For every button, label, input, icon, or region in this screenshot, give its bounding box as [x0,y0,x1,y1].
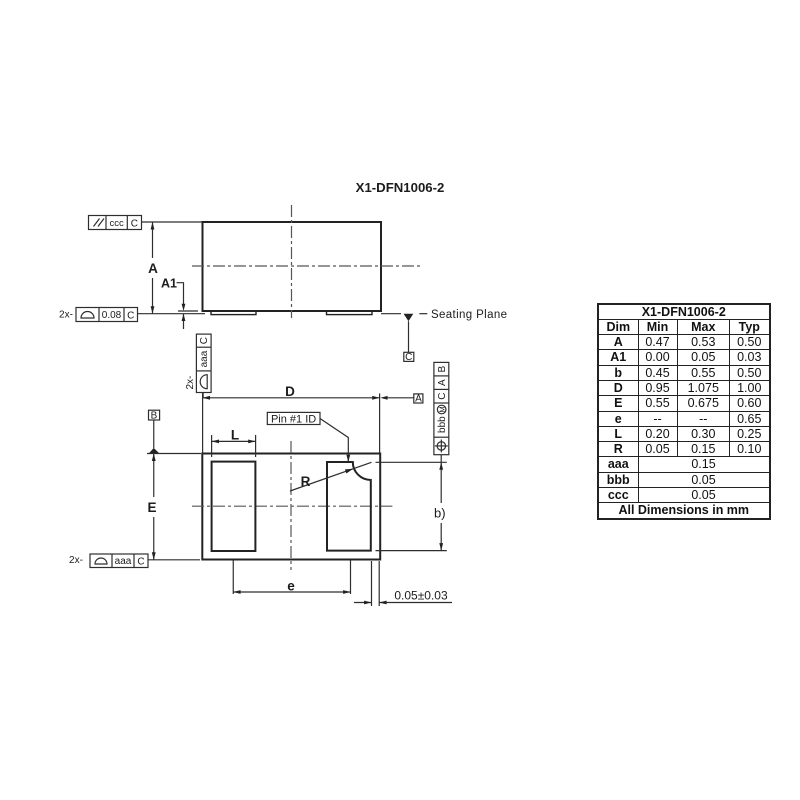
svg-text:A: A [437,379,448,386]
svg-text:B: B [151,410,158,421]
svg-text:D: D [285,384,295,399]
svg-text:ccc: ccc [109,218,124,229]
svg-text:R: R [301,474,311,489]
svg-text:e: e [287,578,295,593]
svg-text:A: A [148,261,158,276]
svg-text:aaa: aaa [115,556,132,567]
svg-text:0.08: 0.08 [102,310,122,321]
svg-text:C: C [131,219,138,230]
svg-text:Seating Plane: Seating Plane [431,309,507,321]
svg-text:Pin #1 ID: Pin #1 ID [271,413,316,425]
svg-text:E: E [147,500,156,515]
svg-text:C: C [137,557,144,568]
svg-text:2x-: 2x- [59,310,73,321]
svg-text:M: M [437,406,446,412]
svg-text:b): b) [434,506,446,521]
svg-text:L: L [231,427,239,442]
svg-text:aaa: aaa [199,350,210,367]
svg-text:B: B [437,365,448,372]
svg-text:2x-: 2x- [185,376,196,390]
svg-text:A: A [415,394,422,405]
svg-text:bbb: bbb [437,416,448,433]
svg-text:A1: A1 [161,277,177,291]
svg-text:C: C [405,352,412,363]
svg-text:X1-DFN1006-2: X1-DFN1006-2 [356,180,445,195]
svg-text:C: C [199,337,210,344]
svg-text:0.05±0.03: 0.05±0.03 [394,589,448,603]
svg-text:C: C [437,393,448,400]
svg-text:C: C [127,311,134,322]
svg-text:2x-: 2x- [69,555,83,566]
